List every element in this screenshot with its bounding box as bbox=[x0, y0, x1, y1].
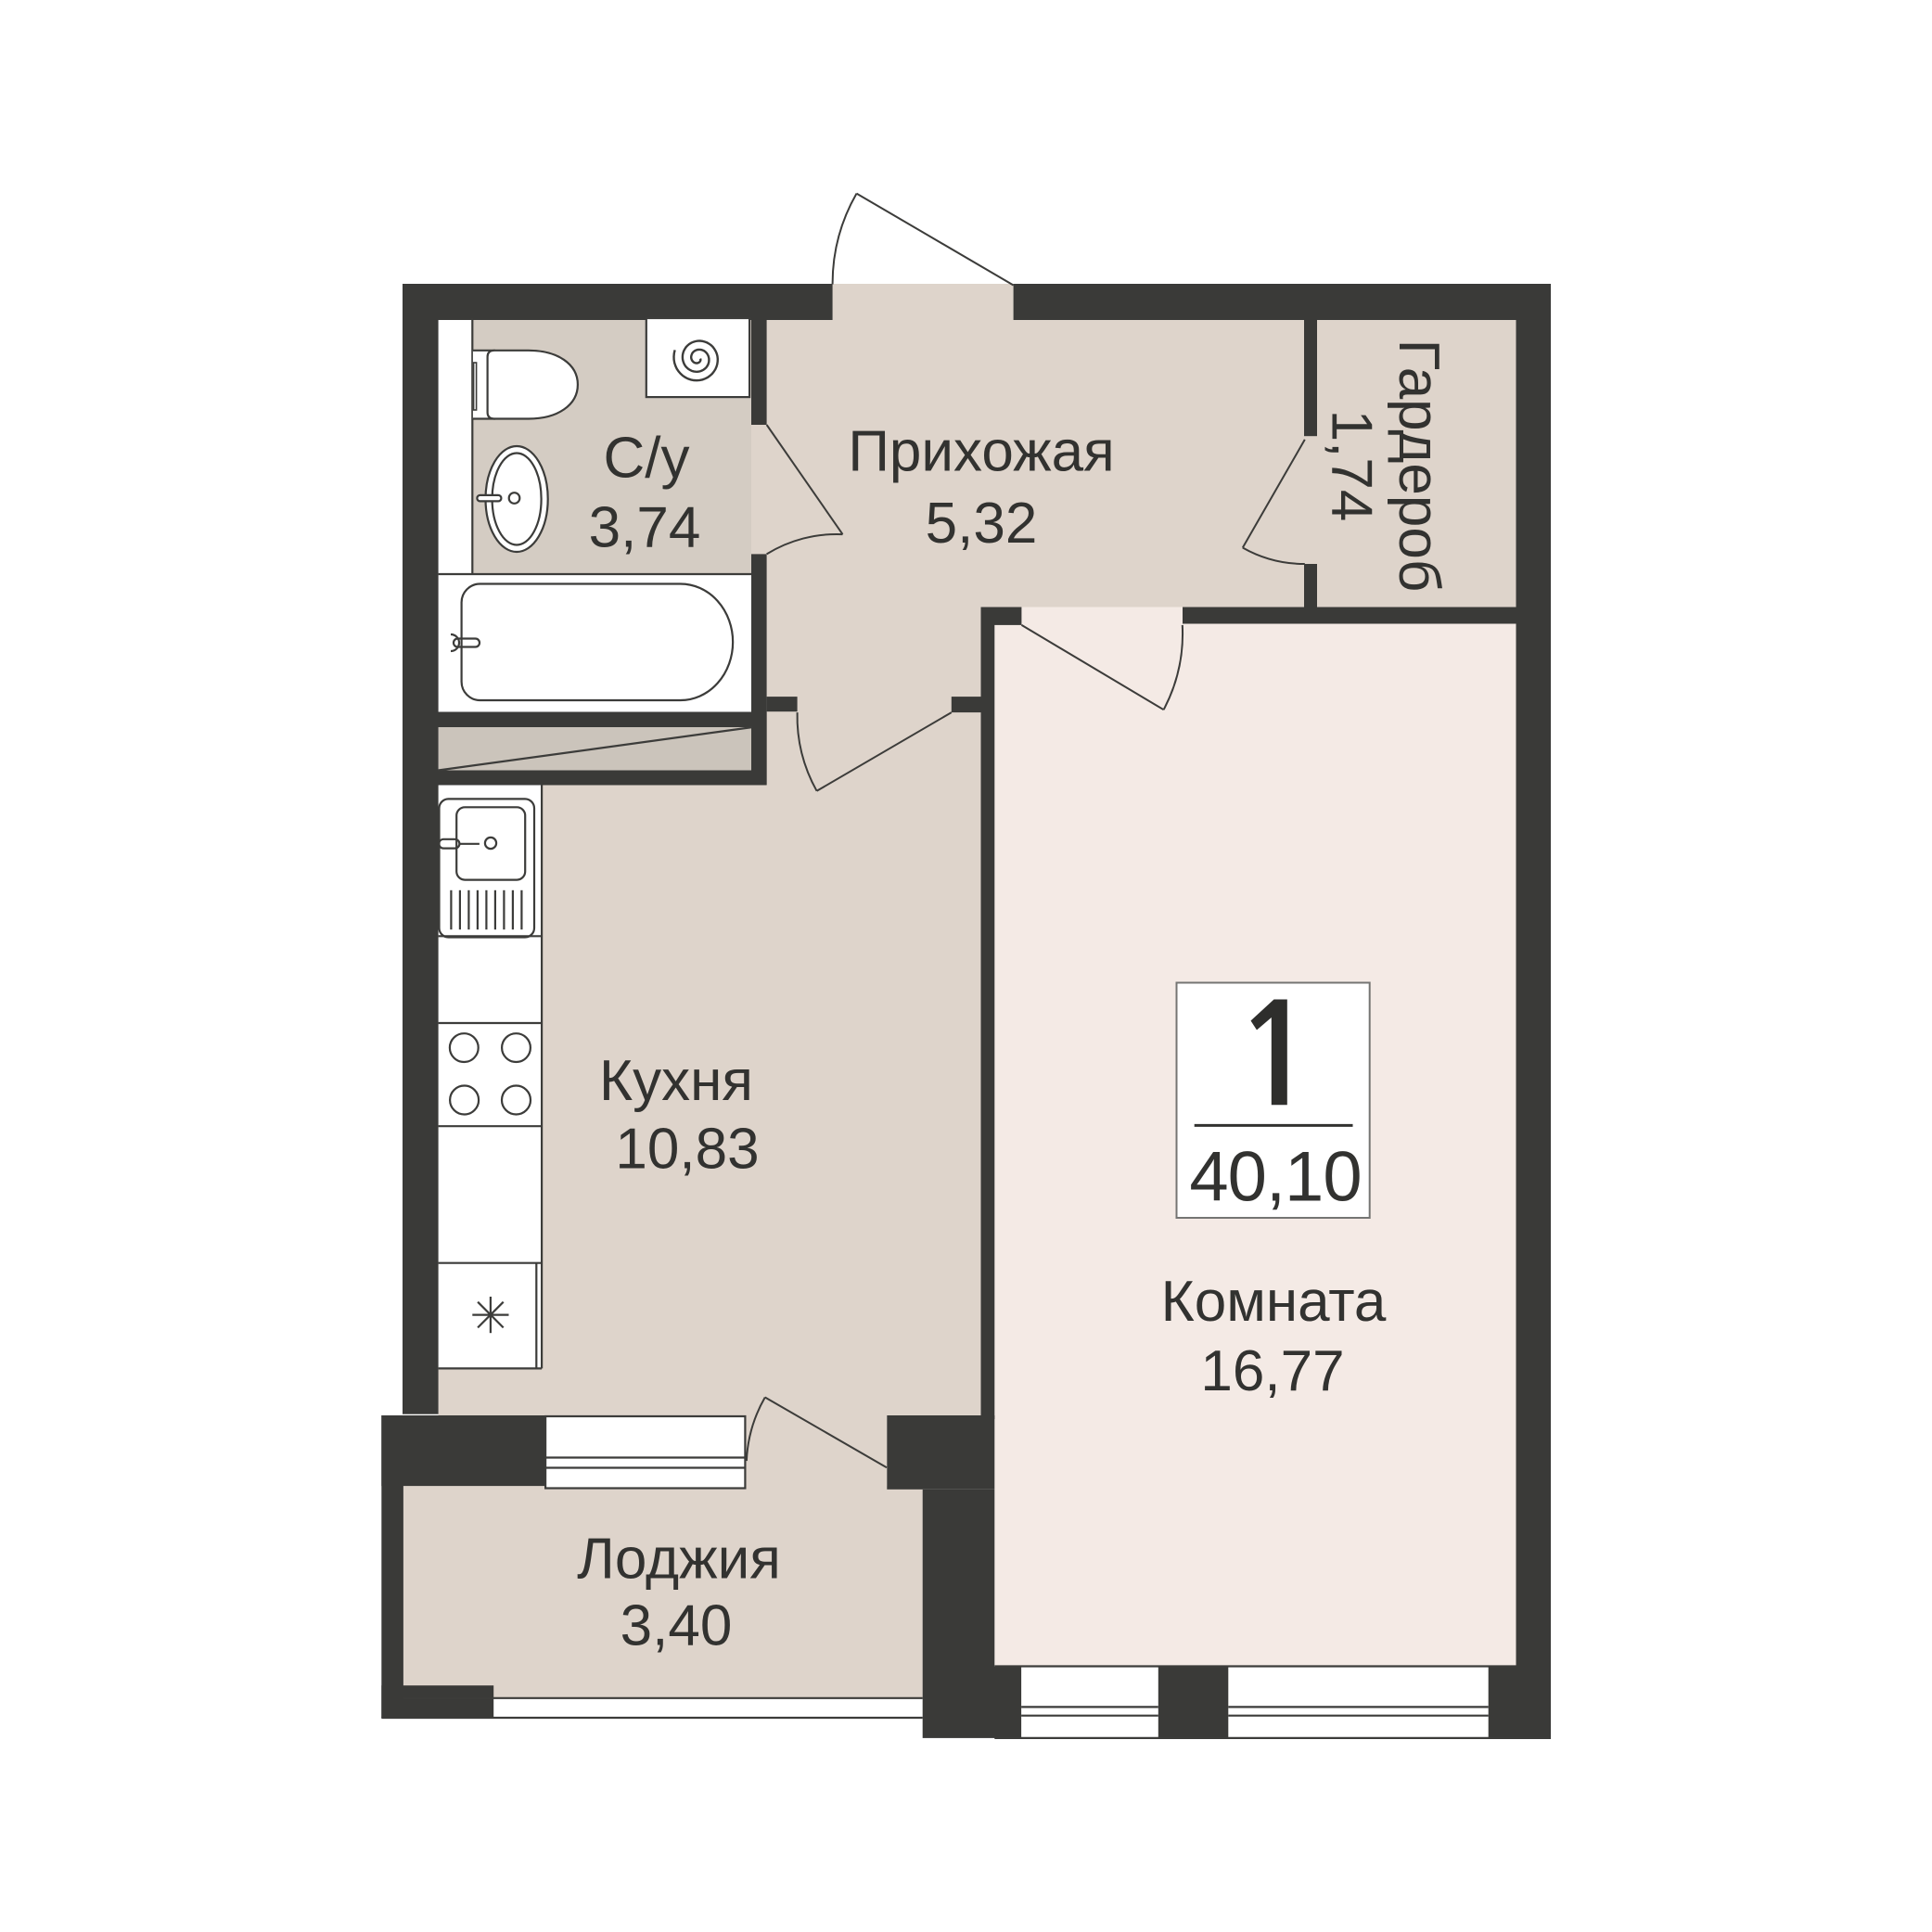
svg-text:Комната: Комната bbox=[1161, 1270, 1387, 1334]
svg-text:3,74: 3,74 bbox=[589, 496, 701, 560]
svg-text:С/у: С/у bbox=[604, 427, 690, 491]
svg-text:Гардероб: Гардероб bbox=[1387, 339, 1451, 593]
svg-text:16,77: 16,77 bbox=[1200, 1339, 1344, 1403]
svg-text:1,74: 1,74 bbox=[1320, 410, 1384, 522]
svg-text:Прихожая: Прихожая bbox=[848, 420, 1114, 484]
svg-text:10,83: 10,83 bbox=[615, 1118, 759, 1182]
svg-text:40,10: 40,10 bbox=[1189, 1138, 1361, 1217]
svg-text:Кухня: Кухня bbox=[599, 1049, 753, 1113]
svg-text:Лоджия: Лоджия bbox=[577, 1528, 781, 1592]
svg-text:3,40: 3,40 bbox=[621, 1594, 733, 1658]
svg-text:5,32: 5,32 bbox=[926, 492, 1038, 556]
